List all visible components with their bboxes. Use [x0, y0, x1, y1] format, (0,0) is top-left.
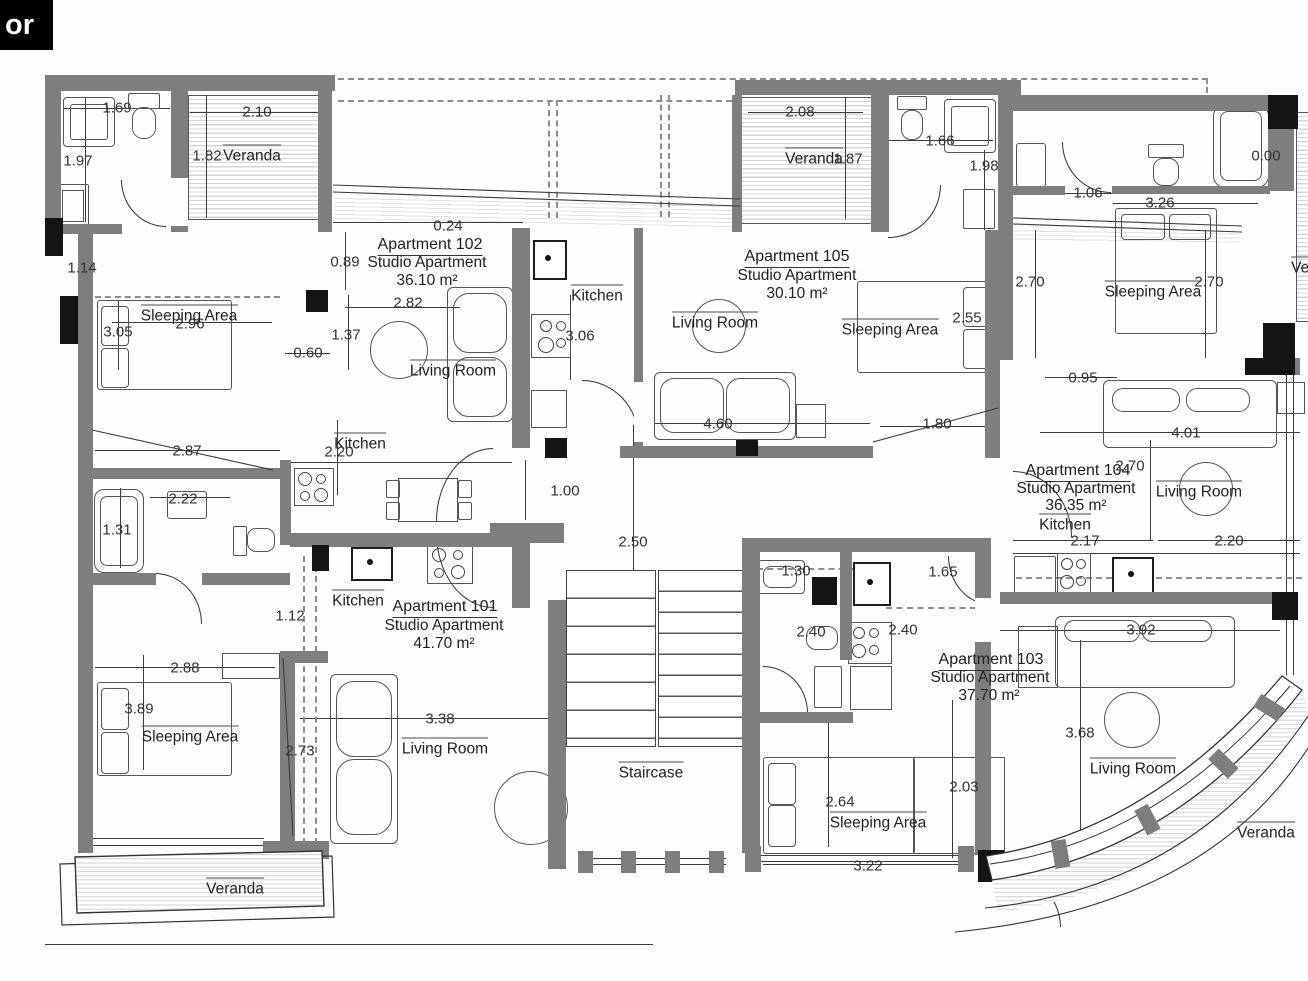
- wall: [755, 712, 853, 723]
- apartment-subtitle-studio-apartment: Studio Apartment: [385, 617, 504, 635]
- dim-label-1-82: 1.82: [192, 148, 221, 165]
- dim-label-2-20: 2.20: [1214, 533, 1243, 550]
- wall: [871, 80, 889, 232]
- structural-column: [736, 440, 758, 456]
- dim-label-2-64: 2.64: [825, 794, 854, 811]
- room-label-sleeping-area: Sleeping Area: [1105, 281, 1202, 302]
- dim-label-1-80: 1.80: [922, 416, 951, 433]
- furniture-outline: [768, 805, 796, 847]
- furniture-outline: [101, 348, 129, 388]
- door-opening: [171, 178, 188, 226]
- wall: [958, 846, 974, 872]
- dimension-line: [760, 855, 958, 856]
- wall: [998, 92, 1013, 360]
- apartment-subtitle-studio-apartment: Studio Apartment: [931, 669, 1050, 687]
- veranda-hatch: [1296, 112, 1308, 322]
- wall: [840, 552, 852, 660]
- dim-label-1-97: 1.97: [63, 153, 92, 170]
- room-label-sleeping-area: Sleeping Area: [142, 726, 239, 747]
- dim-label-3-26: 3.26: [1145, 195, 1174, 212]
- dashed-projection-line: [886, 607, 976, 609]
- furniture-outline: [132, 107, 156, 139]
- dim-label-2-22: 2.22: [168, 491, 197, 508]
- dim-label-2-73: 2.73: [285, 743, 314, 760]
- wall: [45, 75, 61, 220]
- apartment-title-apartment-105: Apartment 105: [745, 248, 850, 268]
- door-swing-arc: [763, 666, 808, 713]
- dashed-projection-line: [95, 296, 280, 298]
- dashed-projection-line: [303, 556, 305, 652]
- dim-label-2-17: 2.17: [1070, 533, 1099, 550]
- dim-label-2-10: 2.10: [242, 104, 271, 121]
- apartment-title-apartment-101: Apartment 101: [393, 598, 498, 618]
- dim-label-2-40: 2.40: [888, 622, 917, 639]
- floor-label-box: or: [0, 0, 53, 50]
- dim-label-1-30: 1.30: [781, 563, 810, 580]
- furniture-outline: [1169, 214, 1211, 240]
- wall: [709, 851, 724, 873]
- wall: [578, 851, 593, 873]
- dim-label-2-96: 2.96: [175, 316, 204, 333]
- door-swing-arc: [121, 180, 166, 227]
- wall: [78, 608, 93, 853]
- wall: [1000, 592, 1273, 604]
- room-label-living-room: Living Room: [1090, 758, 1176, 779]
- furniture-outline: [1220, 111, 1262, 181]
- wall: [280, 651, 328, 663]
- stove-burner-icon: [1076, 559, 1086, 569]
- structural-column: [1272, 592, 1298, 620]
- dimension-line: [525, 460, 526, 520]
- dashed-projection-line: [548, 100, 550, 218]
- wall: [512, 228, 530, 448]
- wall: [45, 75, 335, 91]
- wall: [665, 851, 680, 873]
- dimension-line: [1113, 203, 1258, 204]
- wall: [90, 573, 156, 585]
- apartment-subtitle-36-10-m: 36.10 m²: [396, 272, 457, 290]
- room-label-kitchen: Kitchen: [332, 590, 384, 611]
- staircase-treads: [658, 570, 744, 747]
- furniture-outline: [726, 378, 790, 433]
- room-label-staircase: Staircase: [619, 762, 684, 783]
- furniture-outline: [897, 96, 927, 110]
- furniture-outline: [101, 732, 129, 774]
- dim-label-1-37: 1.37: [331, 327, 360, 344]
- stove-burner-icon: [316, 474, 326, 484]
- dashed-projection-line: [668, 95, 670, 217]
- floor-plan: or: [0, 0, 1308, 981]
- wall: [512, 533, 530, 608]
- dim-label-2-70: 2.70: [1115, 458, 1144, 475]
- dim-label-0-95: 0.95: [1068, 370, 1097, 387]
- room-label-living-room: Living Room: [402, 738, 488, 759]
- apartment-subtitle-36-35-m: 36.35 m²: [1045, 497, 1106, 515]
- dim-label-1-06: 1.06: [1073, 185, 1102, 202]
- dimension-line: [1035, 230, 1036, 358]
- furniture-outline: [386, 480, 400, 498]
- dimension-line: [1150, 440, 1151, 540]
- dim-label-1-87: 1.87: [833, 151, 862, 168]
- dim-label-3-06: 3.06: [565, 328, 594, 345]
- stove-burner-icon: [540, 320, 552, 332]
- stove-burner-icon: [869, 645, 879, 655]
- furniture-outline: [951, 106, 989, 146]
- furniture-outline: [336, 759, 392, 835]
- apartment-subtitle-41-70-m: 41.70 m²: [413, 635, 474, 653]
- dim-label-3-05: 3.05: [103, 324, 132, 341]
- floor-label: or: [5, 9, 34, 42]
- dim-label-2-03: 2.03: [949, 779, 978, 796]
- faucet-icon: [867, 579, 873, 585]
- wall: [742, 538, 760, 853]
- wall: [745, 846, 761, 872]
- dim-label-1-12: 1.12: [275, 608, 304, 625]
- dimension-line: [1286, 373, 1287, 675]
- wall: [732, 95, 742, 232]
- furniture-outline: [796, 404, 826, 438]
- apartment-subtitle-studio-apartment: Studio Apartment: [1017, 480, 1136, 498]
- furniture-outline: [963, 189, 995, 229]
- room-label-veranda: Veranda: [1237, 822, 1295, 843]
- door-opening: [634, 382, 643, 442]
- structural-column: [60, 296, 78, 344]
- dim-label-2-50: 2.50: [618, 534, 647, 551]
- furniture-outline: [247, 528, 275, 552]
- room-label-veranda: Veranda: [1291, 257, 1308, 278]
- stove-burner-icon: [314, 488, 328, 502]
- dim-label-3-22: 3.22: [853, 858, 882, 875]
- dim-label-3-68: 3.68: [1065, 725, 1094, 742]
- furniture-outline: [1186, 388, 1250, 412]
- dashed-projection-line: [338, 100, 742, 102]
- stove-burner-icon: [1060, 575, 1074, 589]
- apartment-subtitle-studio-apartment: Studio Apartment: [738, 267, 857, 285]
- wall: [490, 523, 564, 543]
- dashed-projection-line: [660, 95, 662, 217]
- dashed-projection-line: [556, 100, 558, 218]
- dim-label-1-00: 1.00: [550, 483, 579, 500]
- dimension-line: [1293, 373, 1294, 675]
- stove-burner-icon: [298, 472, 312, 486]
- furniture-outline: [1277, 382, 1305, 414]
- dim-label-2-20: 2.20: [324, 444, 353, 461]
- dim-label-4-60: 4.60: [703, 416, 732, 433]
- furniture-outline: [1148, 144, 1184, 158]
- dim-label-1-98: 1.98: [969, 158, 998, 175]
- structural-column: [1245, 358, 1280, 375]
- dim-label-1-14: 1.14: [67, 260, 96, 277]
- apartment-subtitle-30-10-m: 30.10 m²: [766, 285, 827, 303]
- dim-label-0-60: 0.60: [293, 345, 322, 362]
- dim-label-0-00: 0.00: [1251, 148, 1280, 165]
- structural-column: [812, 577, 837, 605]
- furniture-outline: [531, 390, 567, 428]
- dim-label-2-40: 2.40: [796, 624, 825, 641]
- furniture-outline: [1112, 388, 1180, 412]
- dimension-line: [333, 222, 523, 223]
- faucet-icon: [545, 255, 551, 261]
- wall: [318, 91, 332, 232]
- dim-label-4-01: 4.01: [1171, 425, 1200, 442]
- wall: [621, 851, 636, 873]
- wall: [755, 538, 985, 552]
- furniture-outline: [386, 502, 400, 520]
- wall: [1112, 186, 1270, 194]
- staircase-treads: [566, 570, 656, 747]
- room-label-kitchen: Kitchen: [571, 285, 623, 306]
- door-swing-arc: [155, 573, 202, 624]
- furniture-outline: [814, 666, 842, 708]
- stove-burner-icon: [852, 644, 866, 658]
- furniture-outline: [453, 293, 507, 353]
- apartment-subtitle-37-70-m: 37.70 m²: [958, 687, 1019, 705]
- dim-label-3-92: 3.92: [1126, 622, 1155, 639]
- furniture-outline: [768, 763, 796, 805]
- dim-label-2-70: 2.70: [1015, 274, 1044, 291]
- room-label-living-room: Living Room: [672, 312, 758, 333]
- furniture-outline: [913, 757, 1005, 854]
- furniture-outline: [62, 190, 84, 222]
- dim-label-1-66: 1.66: [925, 133, 954, 150]
- room-label-sleeping-area: Sleeping Area: [830, 812, 927, 833]
- stove-burner-icon: [538, 337, 554, 353]
- dimension-line: [578, 864, 726, 865]
- apartment-subtitle-studio-apartment: Studio Apartment: [368, 254, 487, 272]
- room-label-veranda: Veranda: [223, 145, 281, 166]
- dim-label-2-87: 2.87: [172, 443, 201, 460]
- dim-label-2-08: 2.08: [785, 104, 814, 121]
- room-label-veranda: Veranda: [206, 878, 264, 899]
- faucet-icon: [367, 559, 373, 565]
- wall: [1011, 186, 1065, 195]
- structural-column: [312, 545, 329, 571]
- structural-column: [1268, 95, 1298, 129]
- furniture-outline: [850, 666, 892, 710]
- dim-label-0-89: 0.89: [330, 254, 359, 271]
- dimension-line: [45, 944, 653, 945]
- wall: [548, 600, 566, 843]
- dim-label-2-88: 2.88: [170, 660, 199, 677]
- structural-column: [306, 290, 328, 312]
- dim-label-2-82: 2.82: [393, 295, 422, 312]
- dim-label-0-24: 0.24: [433, 218, 462, 235]
- structural-column: [545, 438, 567, 458]
- dimension-line: [92, 838, 264, 839]
- stove-burner-icon: [869, 628, 879, 638]
- apartment-title-apartment-102: Apartment 102: [378, 236, 483, 256]
- door-opening: [975, 598, 991, 642]
- stove-burner-icon: [300, 491, 310, 501]
- wall: [548, 843, 566, 869]
- stove-burner-icon: [1061, 558, 1073, 570]
- stove-burner-icon: [1076, 576, 1086, 586]
- furniture-outline: [1014, 556, 1056, 596]
- wall: [998, 95, 1296, 111]
- furniture-outline: [233, 526, 247, 556]
- furniture-outline: [1153, 158, 1179, 186]
- dimension-line: [578, 858, 726, 859]
- dim-label-2-55: 2.55: [952, 310, 981, 327]
- faucet-icon: [1128, 571, 1134, 577]
- furniture-outline: [1121, 214, 1165, 240]
- structural-column: [45, 218, 63, 256]
- dim-label-1-65: 1.65: [928, 564, 957, 581]
- wall: [202, 573, 290, 585]
- door-swing-arc: [582, 380, 639, 439]
- wall: [78, 232, 93, 608]
- furniture-outline: [336, 681, 392, 757]
- dim-label-3-89: 3.89: [124, 701, 153, 718]
- dashed-projection-line: [315, 656, 317, 844]
- room-label-sleeping-area: Sleeping Area: [842, 319, 939, 340]
- dimension-line: [92, 845, 264, 846]
- dim-label-1-69: 1.69: [102, 100, 131, 117]
- dim-label-1-31: 1.31: [102, 522, 131, 539]
- structural-column: [978, 850, 1004, 882]
- room-label-kitchen: Kitchen: [1039, 514, 1091, 535]
- dim-label-2-70: 2.70: [1194, 274, 1223, 291]
- wall: [985, 230, 1000, 458]
- furniture-outline: [901, 110, 923, 140]
- stove-burner-icon: [853, 627, 865, 639]
- wall: [90, 468, 283, 479]
- round-table-outline: [1104, 692, 1160, 748]
- dim-label-3-38: 3.38: [425, 711, 454, 728]
- door-swing-arc: [436, 448, 493, 521]
- door-swing-arc: [888, 185, 941, 238]
- wall: [263, 841, 329, 859]
- wall: [745, 446, 873, 458]
- room-label-living-room: Living Room: [1156, 481, 1242, 502]
- apartment-title-apartment-103: Apartment 103: [939, 651, 1044, 671]
- furniture-outline: [1016, 143, 1046, 187]
- room-label-living-room: Living Room: [410, 360, 496, 381]
- furniture-outline: [222, 653, 280, 679]
